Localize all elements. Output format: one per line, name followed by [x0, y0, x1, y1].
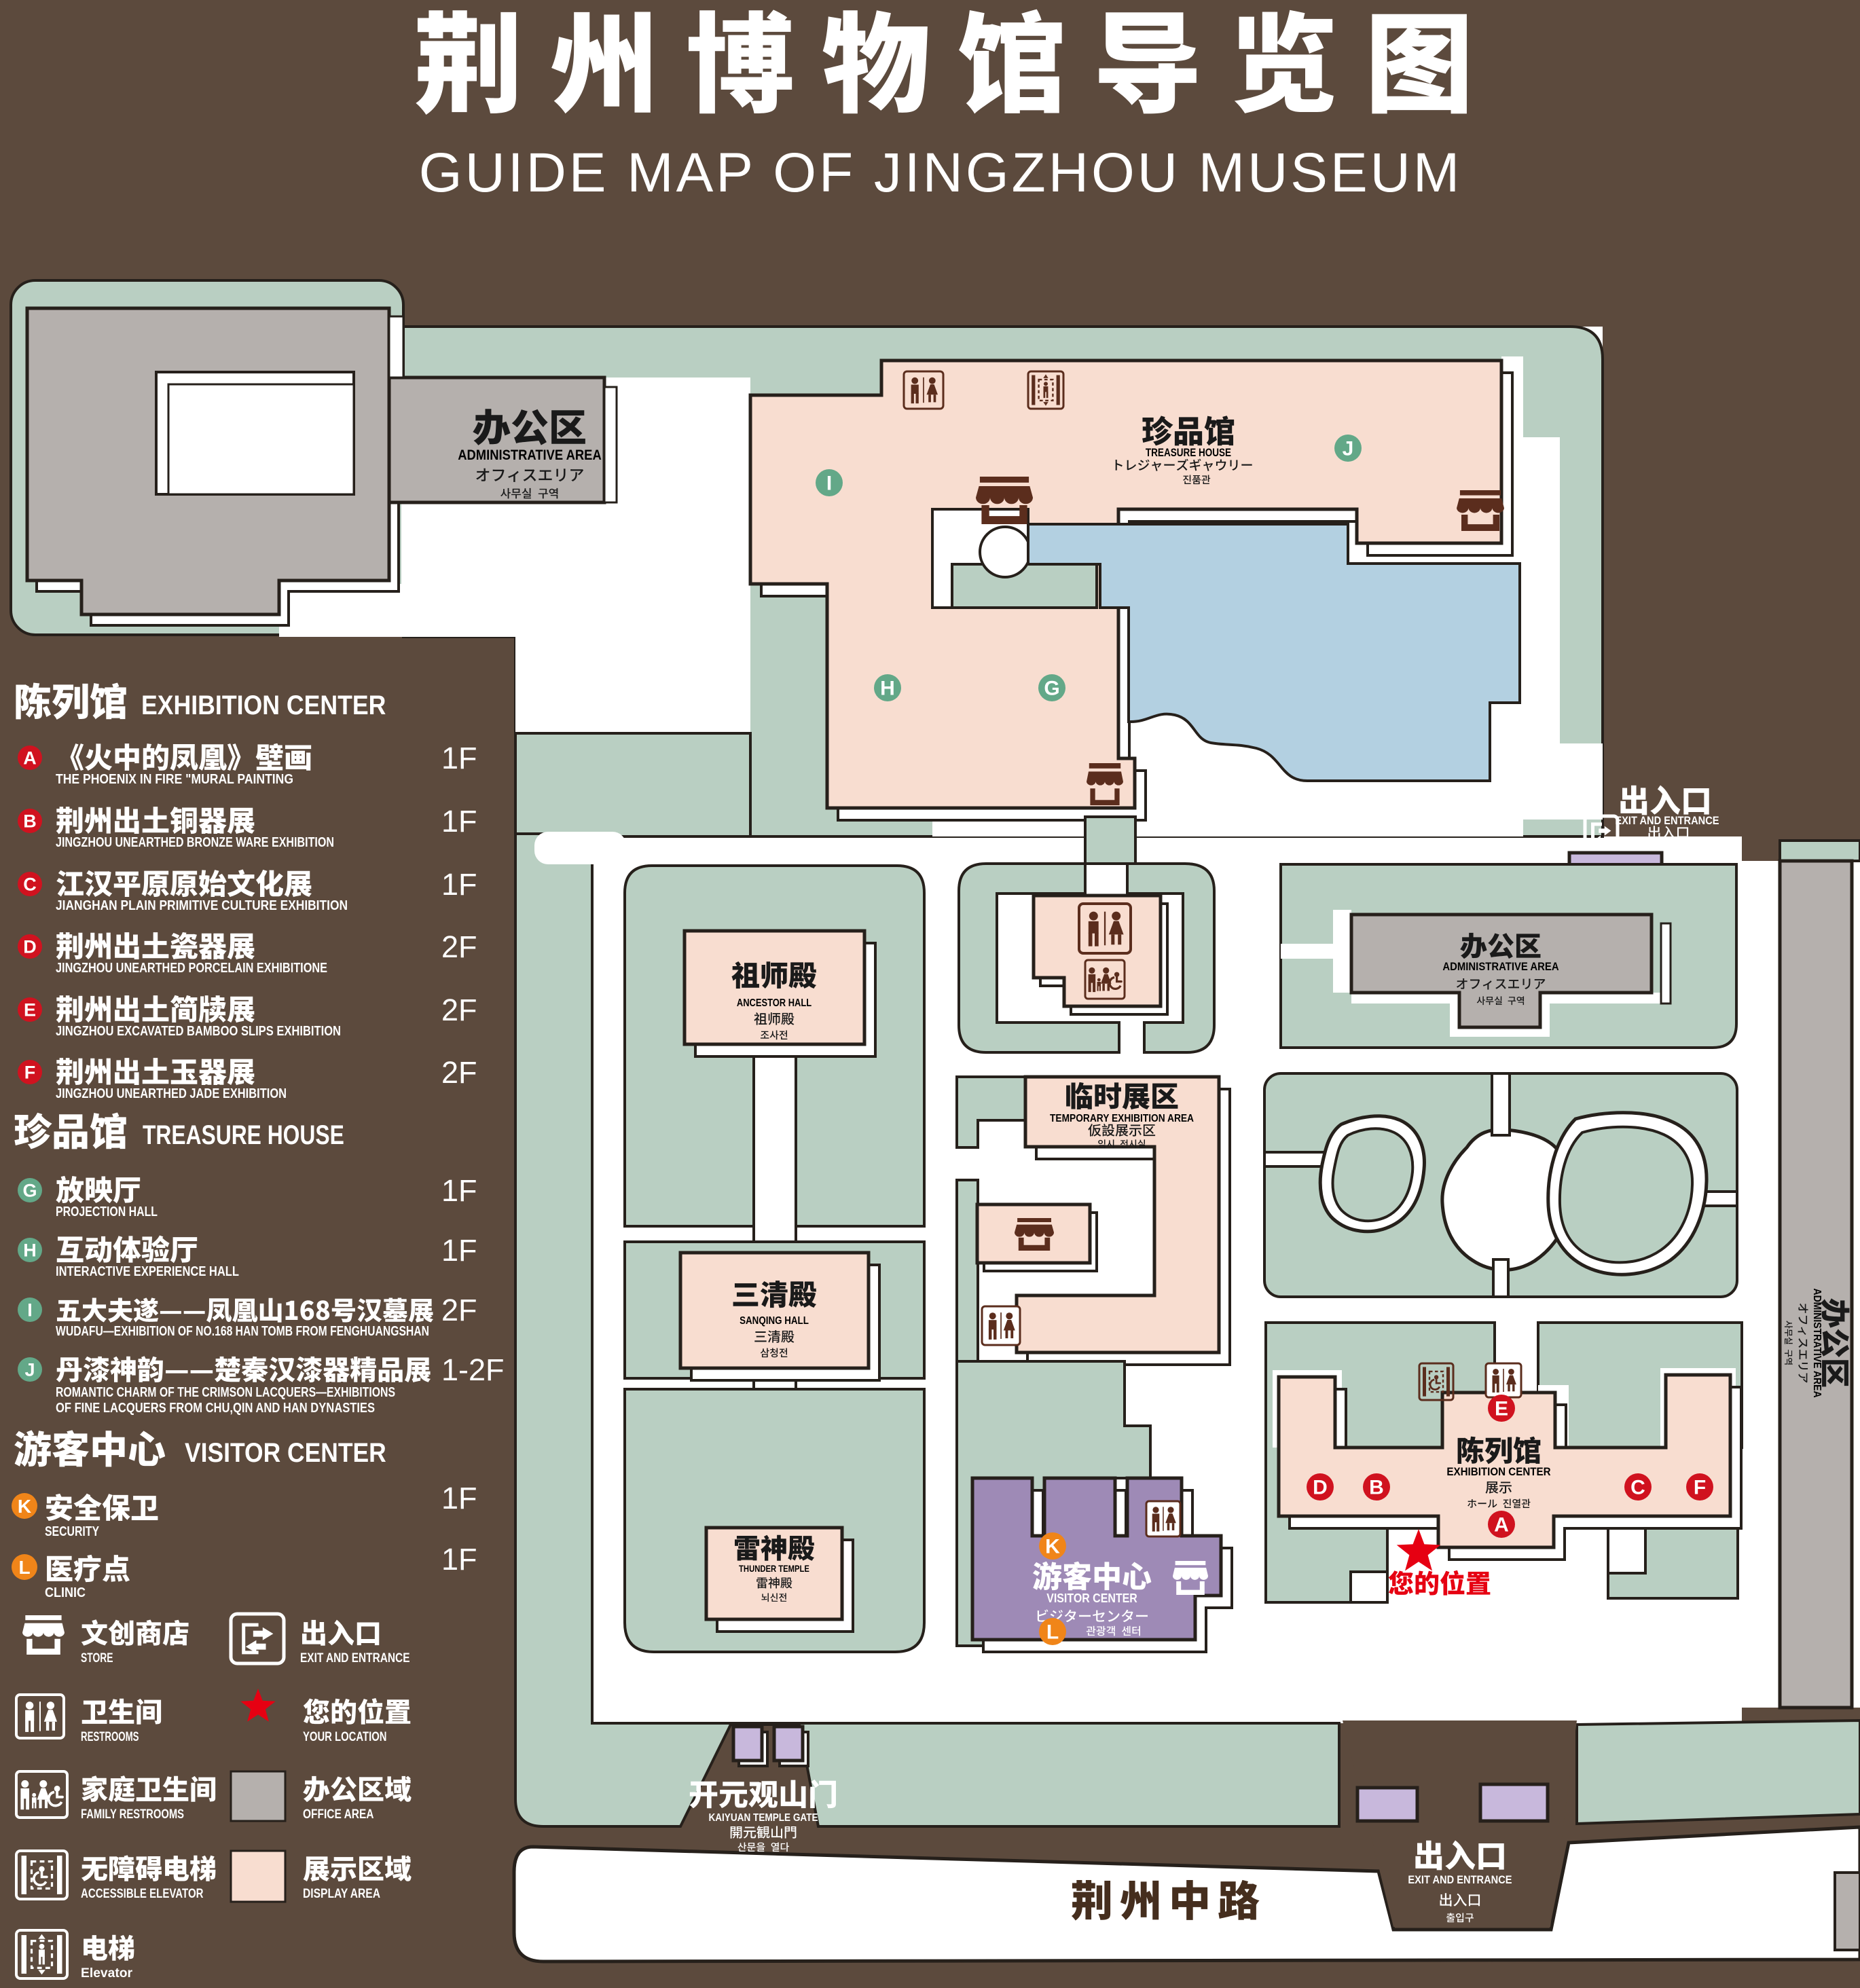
svg-text:1F: 1F	[441, 1233, 477, 1268]
svg-text:EXIT AND ENTRANCE: EXIT AND ENTRANCE	[1615, 814, 1719, 827]
svg-text:GUIDE MAP OF JINGZHOU MUSEUM: GUIDE MAP OF JINGZHOU MUSEUM	[419, 142, 1462, 204]
svg-text:VISITOR CENTER: VISITOR CENTER	[1046, 1591, 1137, 1605]
svg-text:G: G	[22, 1181, 37, 1201]
svg-text:JINGZHOU UNEARTHED JADE EXHIBI: JINGZHOU UNEARTHED JADE EXHIBITION	[56, 1086, 287, 1101]
svg-text:YOUR LOCATION: YOUR LOCATION	[303, 1730, 387, 1744]
svg-text:F: F	[1694, 1477, 1706, 1499]
svg-text:1F: 1F	[441, 1481, 477, 1515]
svg-text:THE PHOENIX IN FIRE "MURAL PAI: THE PHOENIX IN FIRE "MURAL PAINTING	[56, 772, 293, 787]
svg-text:J: J	[1343, 438, 1354, 460]
svg-text:THUNDER TEMPLE: THUNDER TEMPLE	[739, 1563, 809, 1574]
svg-text:J: J	[24, 1360, 35, 1380]
svg-text:VISITOR CENTER: VISITOR CENTER	[185, 1438, 386, 1468]
svg-text:JINGZHOU UNEARTHED PORCELAIN E: JINGZHOU UNEARTHED PORCELAIN EXHIBITIONE	[56, 961, 327, 976]
svg-text:ADMINISTRATIVE AREA: ADMINISTRATIVE AREA	[1442, 960, 1558, 973]
svg-text:JINGZHOU UNEARTHED BRONZE WARE: JINGZHOU UNEARTHED BRONZE WARE EXHIBITIO…	[56, 835, 334, 850]
svg-text:ANCESTOR HALL: ANCESTOR HALL	[737, 997, 812, 1009]
svg-text:ADMINISTRATIVE AREA: ADMINISTRATIVE AREA	[458, 447, 601, 463]
svg-text:I: I	[826, 473, 832, 495]
svg-text:G: G	[1044, 678, 1059, 700]
svg-text:ADMINISTRATIVE AREA: ADMINISTRATIVE AREA	[1811, 1288, 1823, 1398]
svg-text:FAMILY RESTROOMS: FAMILY RESTROOMS	[81, 1807, 184, 1822]
svg-text:E: E	[24, 1000, 36, 1020]
svg-text:F: F	[24, 1063, 36, 1083]
svg-text:OF FINE LACQUERS FROM CHU,QIN: OF FINE LACQUERS FROM CHU,QIN AND HAN DY…	[56, 1401, 375, 1416]
svg-text:2F: 2F	[441, 929, 477, 964]
svg-text:2F: 2F	[441, 993, 477, 1027]
svg-text:K: K	[1045, 1536, 1060, 1558]
svg-text:E: E	[1495, 1398, 1508, 1420]
svg-text:OFFICE AREA: OFFICE AREA	[303, 1807, 374, 1822]
svg-text:STORE: STORE	[81, 1651, 113, 1665]
svg-text:1F: 1F	[441, 741, 477, 775]
svg-text:INTERACTIVE EXPERIENCE HALL: INTERACTIVE EXPERIENCE HALL	[56, 1264, 239, 1279]
svg-text:A: A	[23, 748, 37, 769]
svg-text:K: K	[18, 1496, 31, 1517]
svg-text:EXHIBITION CENTER: EXHIBITION CENTER	[1446, 1465, 1550, 1478]
svg-text:EXIT AND ENTRANCE: EXIT AND ENTRANCE	[300, 1651, 410, 1665]
svg-text:1F: 1F	[441, 867, 477, 902]
svg-text:C: C	[1630, 1477, 1645, 1499]
svg-text:D: D	[23, 937, 37, 957]
svg-text:1F: 1F	[441, 1173, 477, 1208]
svg-text:WUDAFU—EXHIBITION OF NO.168 HA: WUDAFU—EXHIBITION OF NO.168 HAN TOMB FRO…	[56, 1324, 429, 1339]
svg-text:EXHIBITION CENTER: EXHIBITION CENTER	[141, 691, 386, 720]
svg-text:TREASURE HOUSE: TREASURE HOUSE	[1146, 446, 1231, 459]
svg-text:DISPLAY AREA: DISPLAY AREA	[303, 1887, 380, 1901]
svg-text:Elevator: Elevator	[81, 1966, 133, 1981]
svg-text:A: A	[1494, 1514, 1509, 1536]
svg-text:JIANGHAN PLAIN PRIMITIVE CULTU: JIANGHAN PLAIN PRIMITIVE CULTURE EXHIBIT…	[56, 898, 348, 913]
svg-text:1-2F: 1-2F	[441, 1352, 505, 1387]
svg-text:H: H	[23, 1240, 37, 1261]
svg-text:RESTROOMS: RESTROOMS	[81, 1730, 139, 1744]
svg-text:SECURITY: SECURITY	[45, 1524, 100, 1539]
svg-text:SANQING HALL: SANQING HALL	[740, 1315, 809, 1327]
svg-text:ROMANTIC CHARM OF THE CRIMSON: ROMANTIC CHARM OF THE CRIMSON LACQUERS—E…	[56, 1385, 395, 1400]
svg-text:1F: 1F	[441, 804, 477, 839]
svg-text:KAIYUAN TEMPLE GATE: KAIYUAN TEMPLE GATE	[708, 1812, 818, 1824]
svg-text:PROJECTION HALL: PROJECTION HALL	[56, 1204, 158, 1219]
svg-text:EXIT AND ENTRANCE: EXIT AND ENTRANCE	[1408, 1873, 1512, 1886]
svg-text:JINGZHOU EXCAVATED BAMBOO SLIP: JINGZHOU EXCAVATED BAMBOO SLIPS EXHIBITI…	[56, 1024, 341, 1039]
svg-text:C: C	[23, 875, 37, 895]
svg-text:2F: 2F	[441, 1293, 477, 1327]
svg-text:L: L	[18, 1557, 30, 1578]
svg-text:2F: 2F	[441, 1055, 477, 1090]
svg-text:TREASURE HOUSE: TREASURE HOUSE	[143, 1120, 344, 1150]
svg-text:CLINIC: CLINIC	[45, 1585, 86, 1600]
svg-text:TEMPORARY EXHIBITION AREA: TEMPORARY EXHIBITION AREA	[1050, 1113, 1194, 1124]
svg-text:L: L	[1046, 1621, 1059, 1644]
svg-text:B: B	[23, 811, 37, 832]
svg-text:B: B	[1369, 1477, 1384, 1499]
svg-text:D: D	[1313, 1477, 1328, 1499]
svg-text:1F: 1F	[441, 1542, 477, 1577]
svg-text:ACCESSIBLE ELEVATOR: ACCESSIBLE ELEVATOR	[81, 1887, 204, 1901]
svg-text:I: I	[27, 1300, 33, 1321]
svg-text:H: H	[880, 678, 895, 700]
